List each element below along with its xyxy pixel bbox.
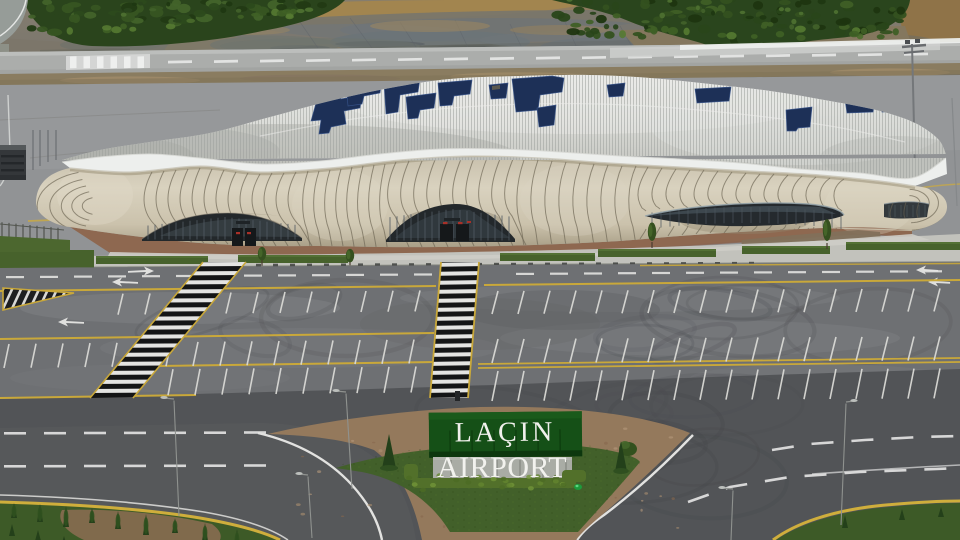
svg-text:LAÇIN: LAÇIN [455, 416, 556, 448]
svg-text:AIRPORT: AIRPORT [437, 451, 567, 484]
